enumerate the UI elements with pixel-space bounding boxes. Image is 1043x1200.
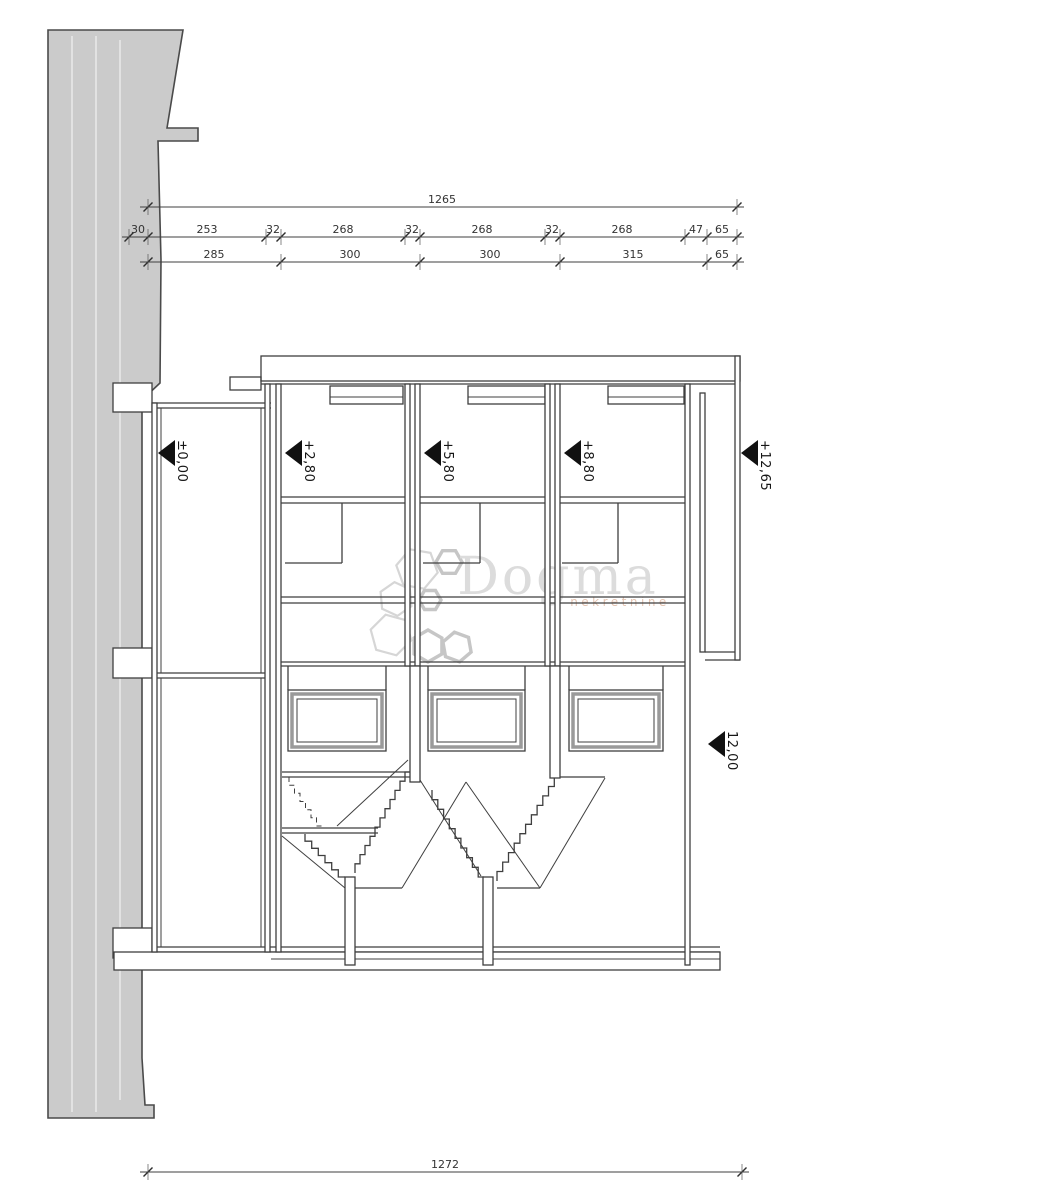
dim-label: 315	[623, 248, 644, 261]
level-triangle-icon	[424, 440, 441, 466]
level-label: +5,80	[440, 440, 455, 482]
roof-slab	[230, 356, 740, 390]
watermark-flower-logo	[371, 549, 471, 662]
petal-icon	[443, 632, 471, 662]
dim-label: 32	[266, 223, 280, 236]
slab-pocket-middle	[113, 648, 152, 678]
level-label: 12,00	[724, 731, 739, 771]
level-triangle-icon	[564, 440, 581, 466]
dim-label: 47	[689, 223, 703, 236]
slab-pocket-upper	[113, 383, 152, 412]
level-label: +12,65	[757, 440, 772, 491]
level-marker-12-00: 12,00	[708, 731, 739, 771]
dim-label: 268	[472, 223, 493, 236]
party-wall	[555, 384, 560, 666]
dimension-chain-bottom: 1272	[140, 1158, 749, 1180]
stair-column	[483, 877, 493, 965]
dimension-chain-axes: 285 300 300 315 65	[140, 248, 744, 270]
roof-lintels	[330, 386, 684, 404]
party-wall	[405, 384, 410, 666]
level-marker-5-80: +5,80	[424, 440, 455, 482]
dim-total-bottom: 1272	[431, 1158, 459, 1171]
dim-label: 30	[131, 223, 145, 236]
dim-label: 32	[545, 223, 559, 236]
level-marker-8-80: +8,80	[564, 440, 595, 482]
hidden-stair-flight	[289, 777, 322, 826]
foundation-slab	[114, 952, 720, 970]
stair-flight-down	[432, 790, 484, 877]
dim-label: 300	[340, 248, 361, 261]
level-marker-0-00: ±0,00	[158, 440, 189, 482]
dim-label: 300	[480, 248, 501, 261]
stair-column	[345, 877, 355, 965]
dimension-chain-detail: 30 253 32 268 32 268 32 268 47 65	[122, 223, 744, 245]
dimension-chain-total: 1265	[140, 193, 744, 215]
dim-label: 32	[405, 223, 419, 236]
level-label: +8,80	[580, 440, 595, 482]
level-triangle-icon	[285, 440, 302, 466]
dim-total-top: 1265	[428, 193, 456, 206]
party-wall	[415, 384, 420, 666]
dim-label: 65	[715, 223, 729, 236]
dim-label: 285	[204, 248, 225, 261]
dim-label: 253	[197, 223, 218, 236]
dim-label: 268	[333, 223, 354, 236]
party-wall	[265, 384, 270, 952]
roof-eave-step	[230, 377, 261, 390]
stair-flight-up	[497, 777, 560, 881]
stair-flight-down	[305, 834, 345, 877]
left-room-wall	[152, 403, 157, 952]
stairs	[282, 760, 605, 888]
floor-slabs	[152, 403, 740, 952]
hanging-column	[410, 666, 420, 782]
level-label: ±0,00	[174, 440, 189, 482]
party-wall	[545, 384, 550, 666]
party-wall	[685, 384, 690, 965]
hanging-column	[550, 666, 560, 778]
slab-openings	[288, 666, 663, 751]
level-triangle-icon	[708, 731, 725, 757]
level-marker-12-65: +12,65	[741, 440, 772, 491]
level-triangle-icon	[741, 440, 758, 466]
party-wall	[276, 384, 281, 952]
architectural-section-drawing: Dogma nekretnine 1265 30 253 32 268 32 2…	[0, 0, 1043, 1200]
dim-label: 65	[715, 248, 729, 261]
dim-label: 268	[612, 223, 633, 236]
flight-stringer	[337, 760, 408, 826]
level-marker-2-80: +2,80	[285, 440, 316, 482]
petal-icon	[419, 591, 441, 610]
cantilever-wall	[700, 393, 705, 652]
level-label: +2,80	[301, 440, 316, 482]
stair-flight-up	[355, 772, 410, 873]
right-facade-wall	[735, 356, 740, 660]
